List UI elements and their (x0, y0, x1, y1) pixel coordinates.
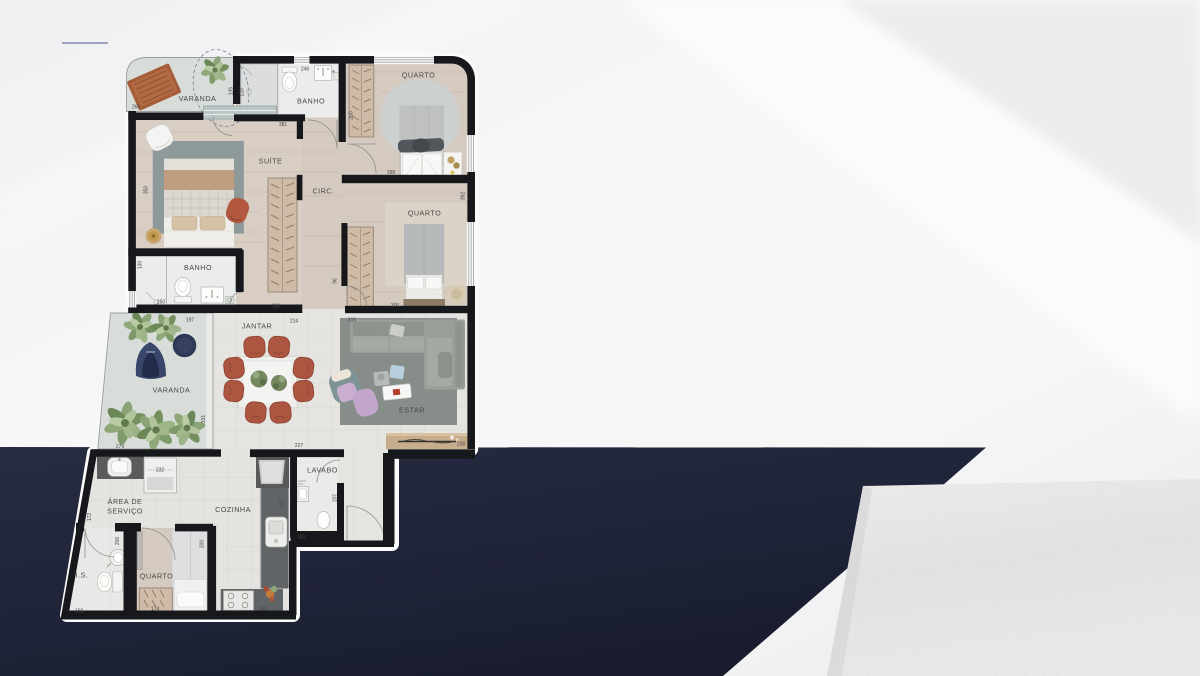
svg-text:331: 331 (201, 415, 207, 424)
svg-text:SERVIÇO: SERVIÇO (107, 507, 143, 516)
svg-text:260: 260 (132, 105, 141, 111)
svg-text:BANHO: BANHO (184, 263, 212, 272)
svg-text:227: 227 (295, 443, 304, 449)
svg-text:LAVABO: LAVABO (307, 466, 338, 475)
svg-text:150: 150 (75, 609, 84, 615)
svg-text:VARANDA: VARANDA (153, 386, 191, 395)
svg-text:160: 160 (259, 607, 268, 613)
svg-text:200: 200 (115, 537, 121, 546)
svg-text:130: 130 (138, 261, 144, 270)
svg-text:250: 250 (157, 300, 166, 306)
svg-text:ÁREA DE: ÁREA DE (108, 497, 143, 506)
svg-text:200: 200 (200, 540, 206, 549)
svg-text:CIRC.: CIRC. (312, 187, 334, 196)
svg-text:207: 207 (333, 494, 339, 503)
svg-text:100: 100 (297, 535, 306, 541)
svg-text:392: 392 (461, 192, 467, 201)
svg-text:VARANDA: VARANDA (179, 94, 217, 103)
svg-text:260: 260 (349, 111, 355, 120)
svg-text:JANTAR: JANTAR (242, 322, 272, 331)
svg-text:172: 172 (87, 513, 93, 522)
svg-text:367: 367 (280, 500, 286, 509)
svg-text:246: 246 (301, 67, 310, 73)
svg-text:197: 197 (186, 318, 195, 324)
svg-text:COZINHA: COZINHA (215, 505, 251, 514)
svg-text:279: 279 (116, 444, 125, 450)
svg-text:ESTAR: ESTAR (399, 406, 425, 415)
svg-text:315: 315 (348, 318, 357, 324)
svg-text:I.S.: I.S. (76, 571, 89, 580)
svg-text:232: 232 (156, 468, 165, 474)
svg-text:130: 130 (272, 304, 281, 310)
svg-text:96: 96 (333, 278, 339, 284)
svg-text:288: 288 (387, 170, 396, 176)
svg-text:QUARTO: QUARTO (402, 71, 436, 80)
svg-text:350: 350 (144, 186, 150, 195)
svg-text:174: 174 (151, 607, 160, 613)
svg-text:120: 120 (240, 88, 246, 97)
svg-text:BANHO: BANHO (297, 97, 325, 106)
svg-text:214: 214 (290, 319, 299, 325)
svg-text:381: 381 (279, 122, 288, 128)
svg-text:SUÍTE: SUÍTE (259, 157, 283, 166)
svg-text:QUARTO: QUARTO (408, 209, 442, 218)
svg-text:QUARTO: QUARTO (140, 572, 174, 581)
svg-text:135: 135 (229, 87, 235, 96)
svg-text:300: 300 (391, 303, 400, 309)
svg-text:208: 208 (457, 442, 466, 448)
